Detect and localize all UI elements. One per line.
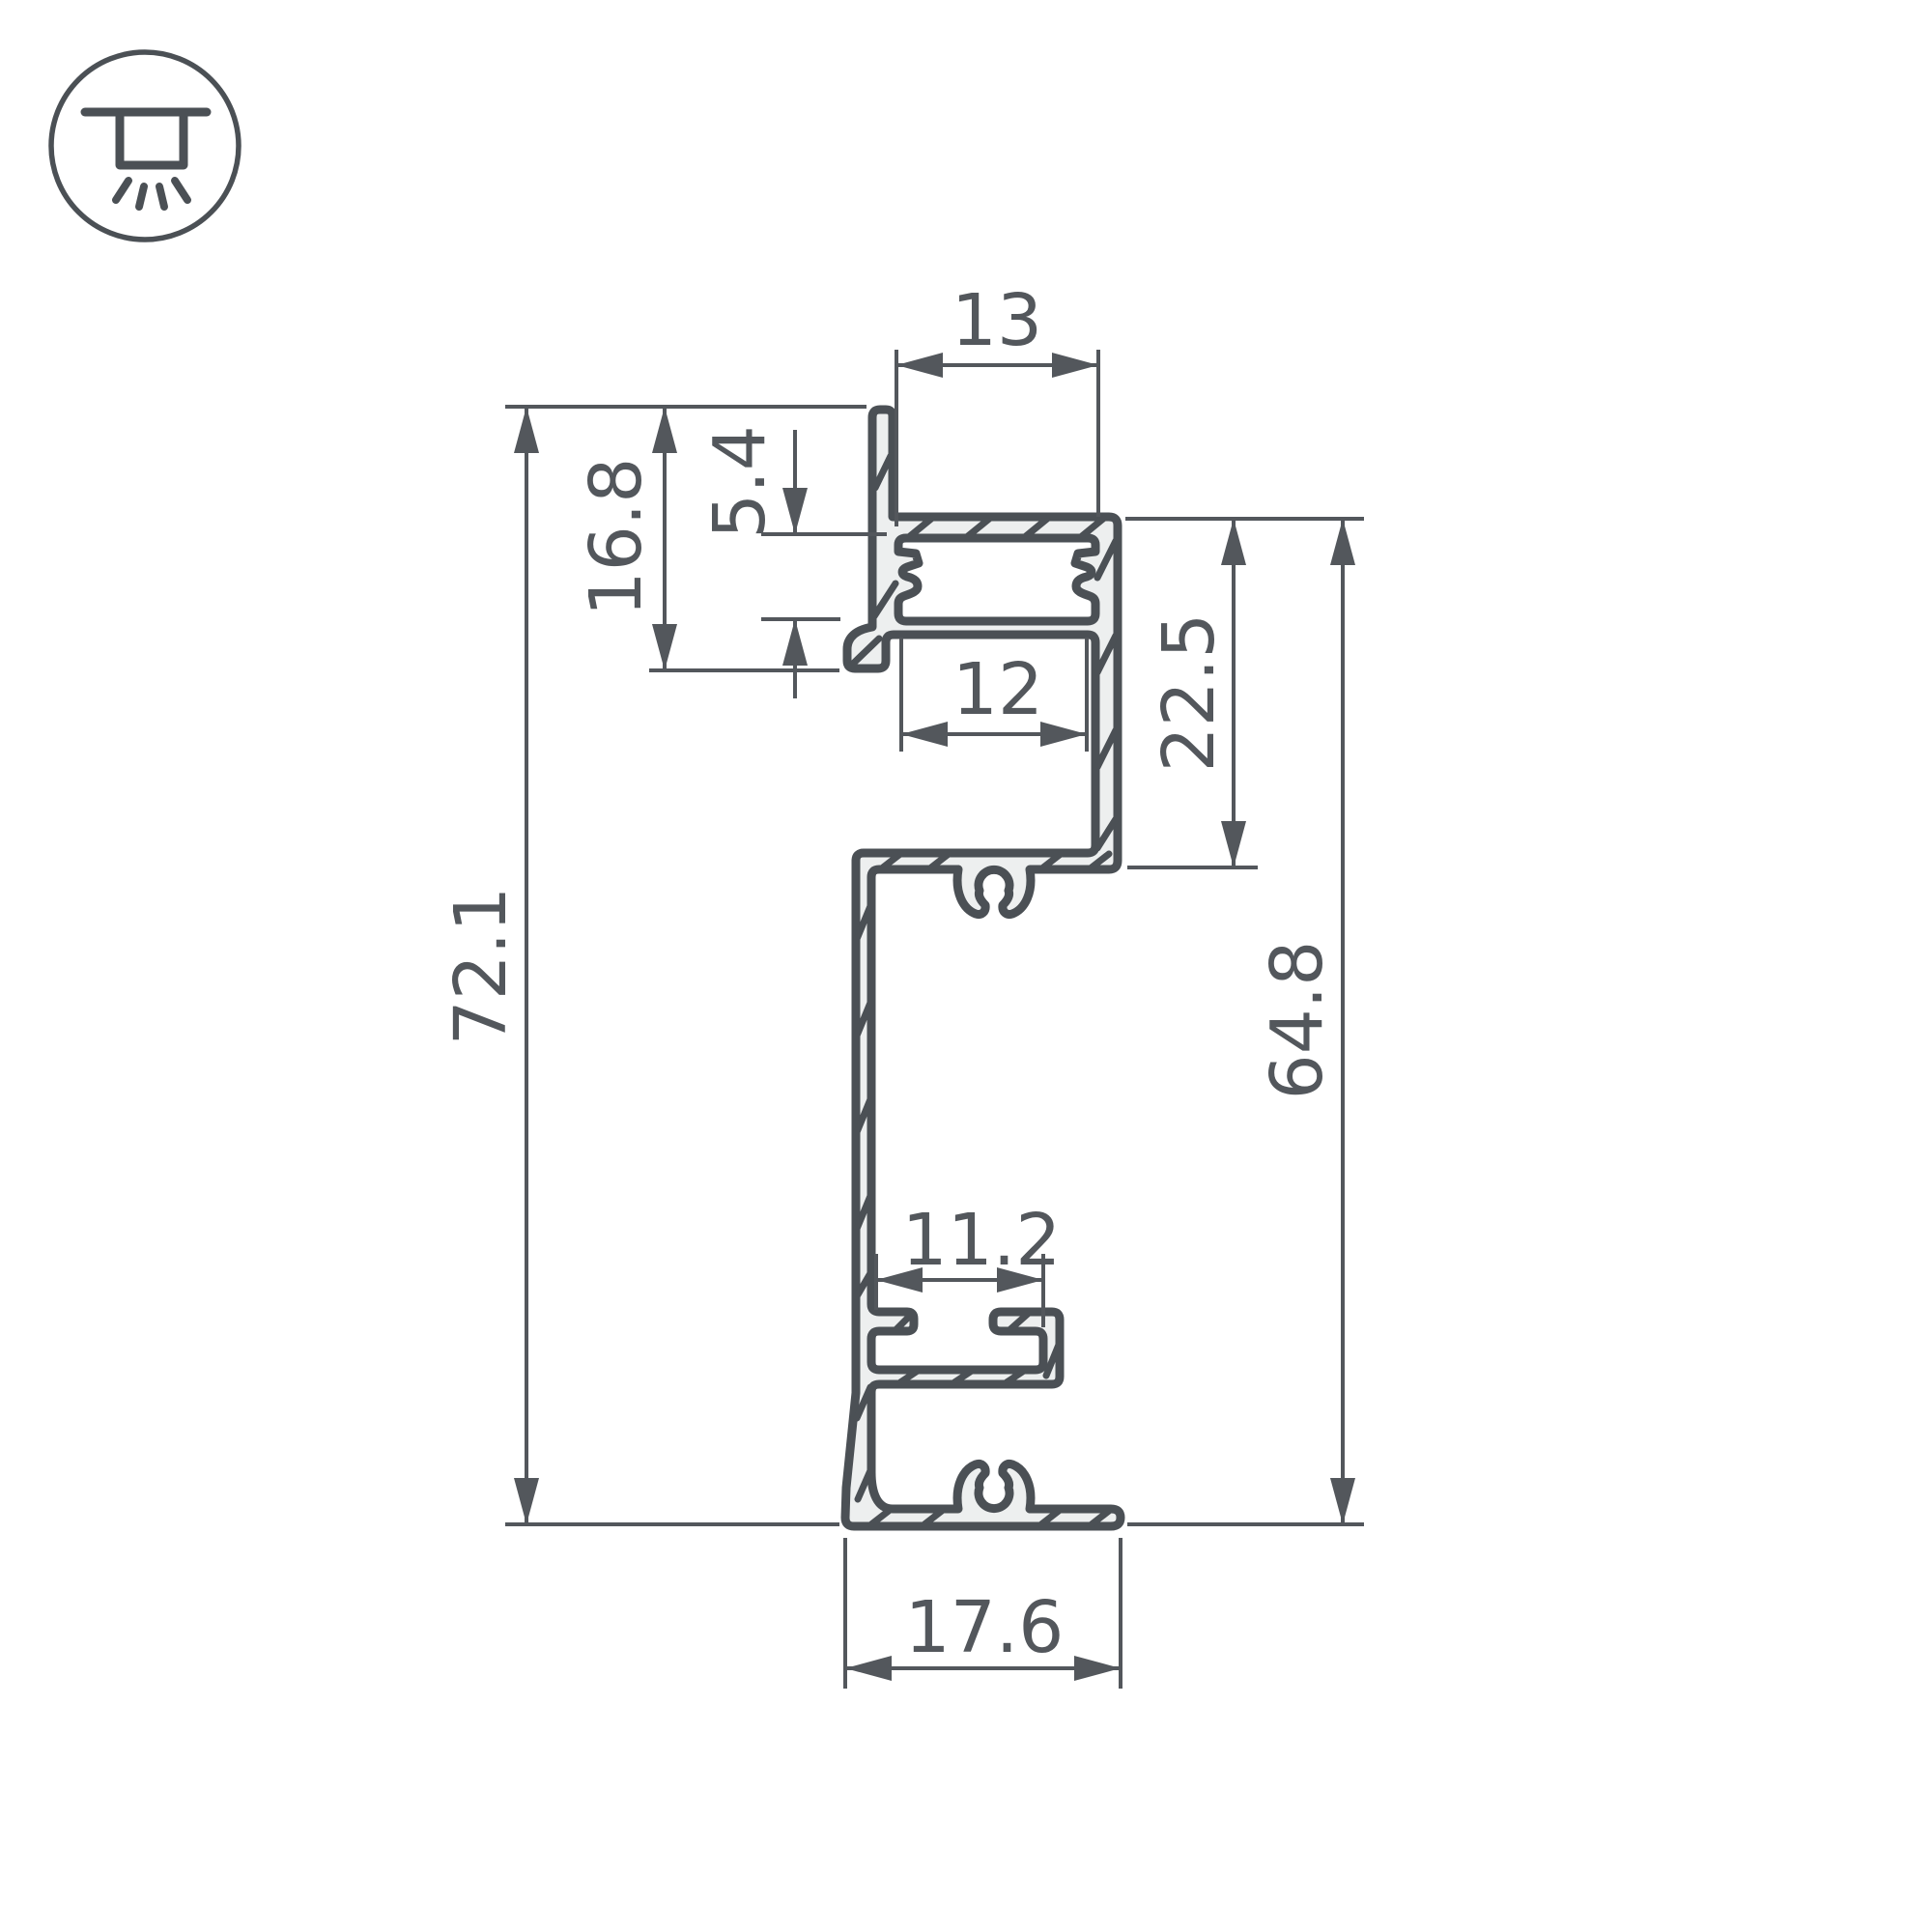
dim-overall-height: 72.1 (440, 887, 523, 1046)
dim-body-height: 64.8 (1256, 941, 1339, 1100)
dim-base-width: 17.6 (905, 1586, 1065, 1669)
mounting-type-icon (51, 52, 239, 240)
dimension-annotations: 13 12 11.2 17.6 5.4 16.8 22.5 72.1 64.8 (440, 279, 1364, 1689)
fixture-body (120, 112, 184, 165)
recessed-ceiling-light-icon (85, 112, 207, 207)
dim-clip-slot-width: 11.2 (902, 1199, 1062, 1282)
dim-channel-section-height: 22.5 (1148, 613, 1231, 773)
icon-circle (51, 52, 239, 240)
dim-diffuser-recess-depth: 5.4 (698, 425, 781, 539)
dim-flange-height: 16.8 (575, 458, 658, 617)
dim-top-opening-width: 13 (952, 279, 1042, 362)
dim-led-slot-width: 12 (952, 648, 1043, 731)
profile-outline (845, 410, 1121, 1526)
light-rays (116, 181, 187, 207)
aluminum-profile-section (845, 410, 1121, 1526)
technical-drawing-page: 13 12 11.2 17.6 5.4 16.8 22.5 72.1 64.8 (0, 0, 1932, 1932)
profile-cross-section-drawing: 13 12 11.2 17.6 5.4 16.8 22.5 72.1 64.8 (0, 0, 1932, 1932)
